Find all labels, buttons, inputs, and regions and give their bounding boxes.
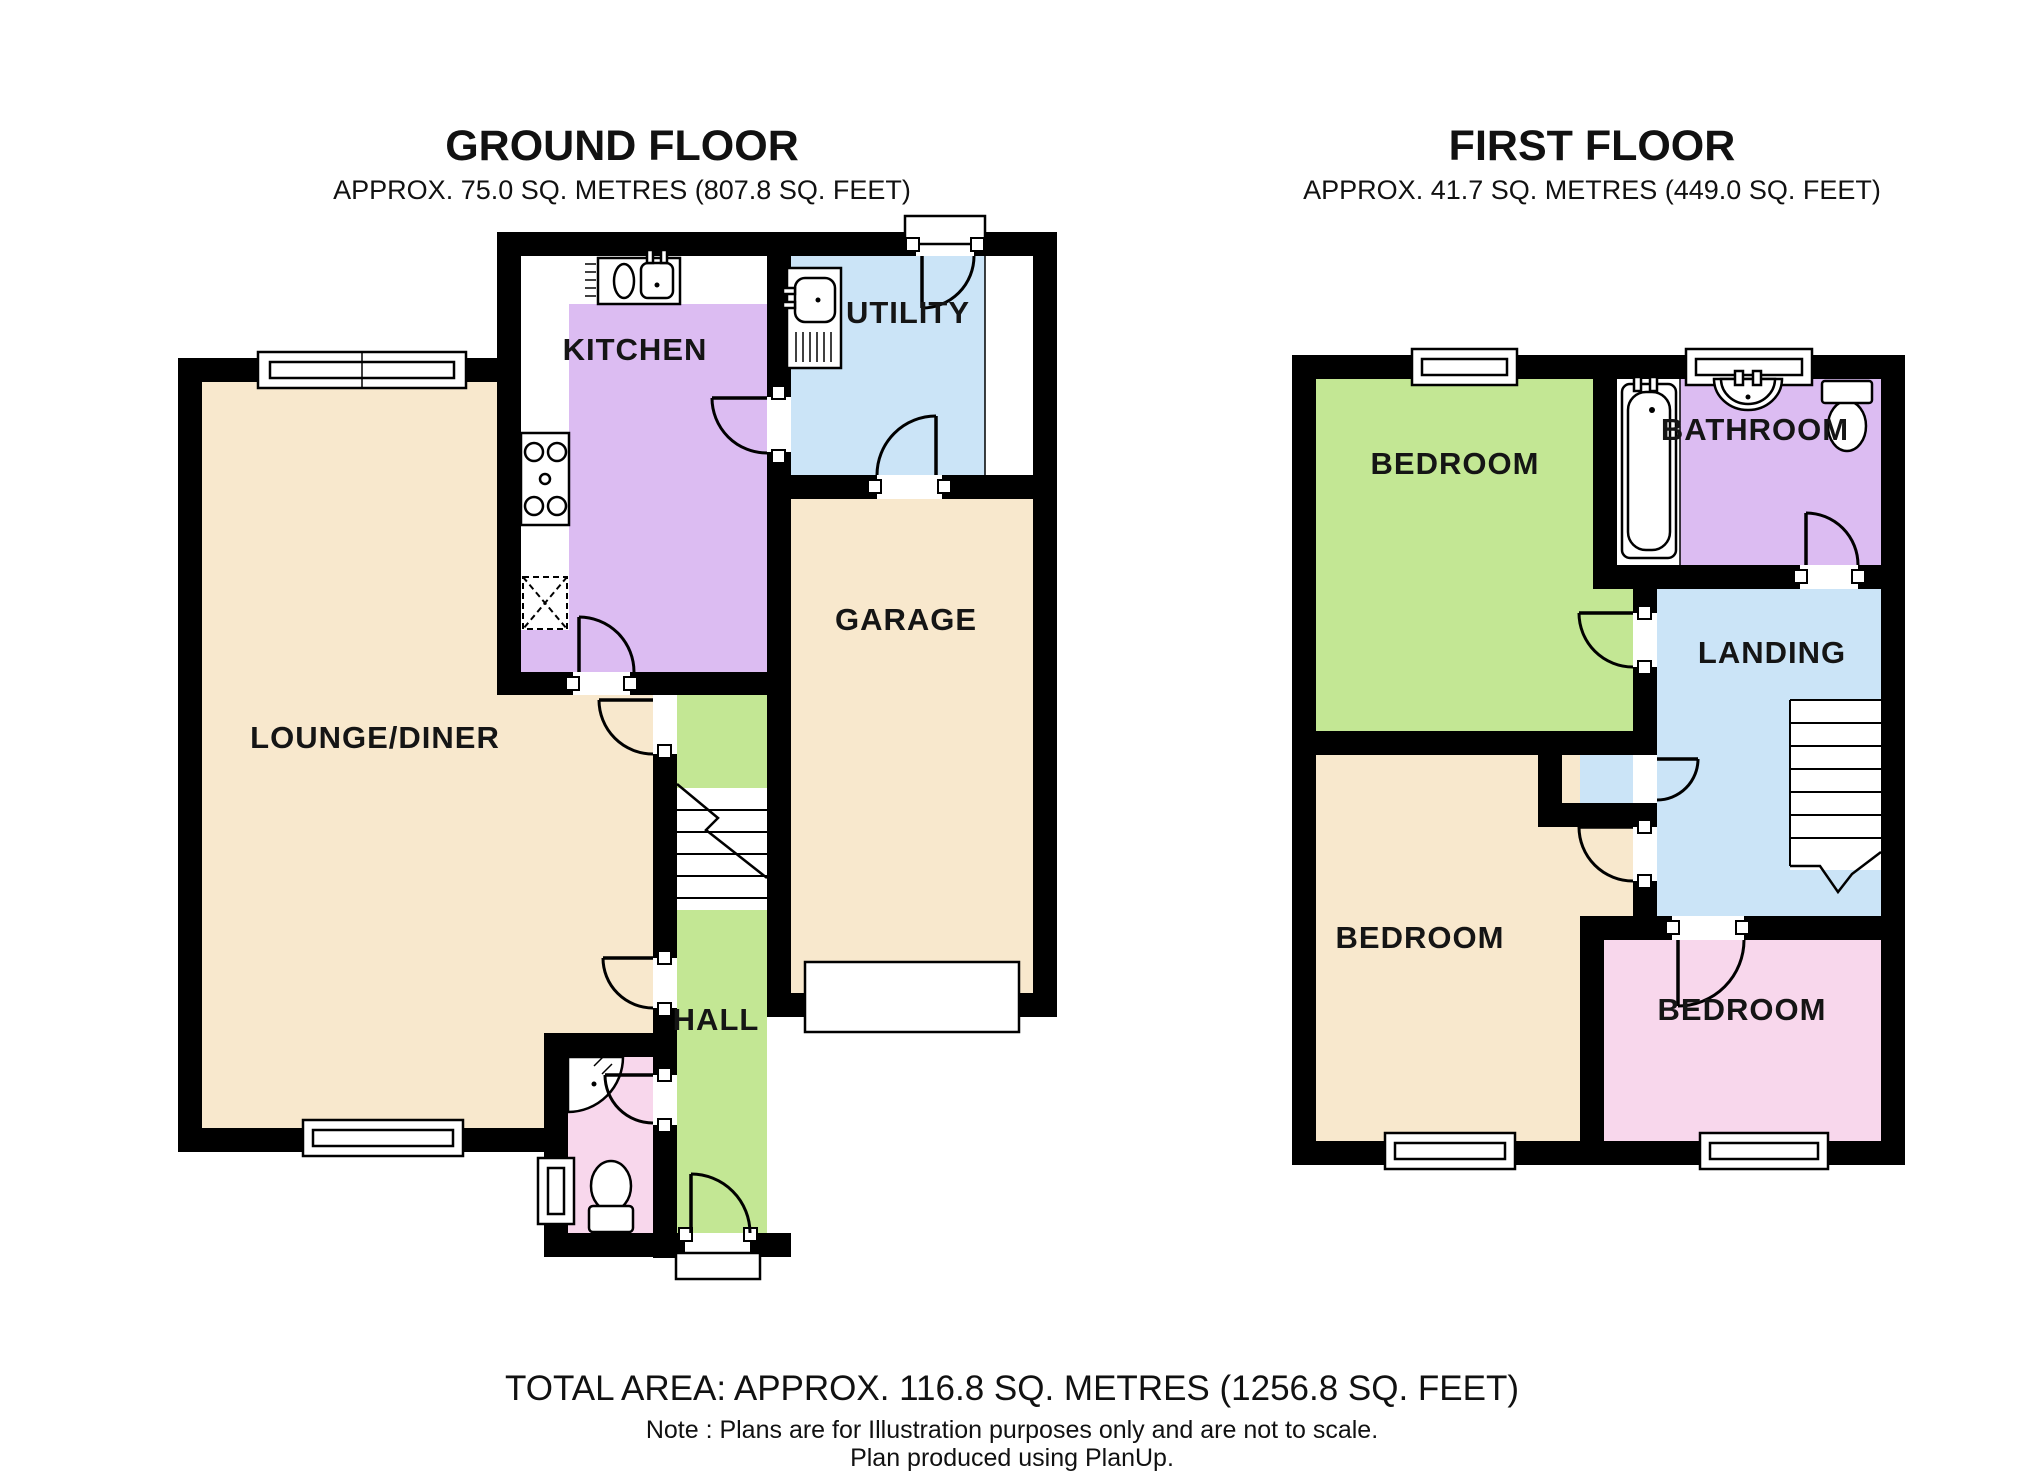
garage-door: [805, 962, 1019, 1032]
wc-window-glass: [548, 1168, 564, 1214]
produced-text: Plan produced using PlanUp.: [850, 1444, 1174, 1472]
label-bedroom-top: BEDROOM: [1371, 446, 1540, 481]
lounge-bottom-window-glass: [313, 1130, 453, 1146]
note-text: Note : Plans are for Illustration purpos…: [646, 1416, 1378, 1444]
room-hall-upper: [677, 695, 767, 788]
ground-stairs: [677, 784, 767, 910]
room-lounge-diner-ext2: [497, 1033, 544, 1128]
label-utility: UTILITY: [846, 295, 970, 330]
bath: [1622, 377, 1676, 558]
label-hall: HALL: [673, 1002, 760, 1037]
room-lounge-diner-ext: [497, 695, 653, 1033]
first-floor-title: FIRST FLOOR: [1449, 122, 1736, 170]
label-bathroom: BATHROOM: [1661, 412, 1849, 447]
bedroom-top-window-glass: [1422, 359, 1507, 375]
room-garage: [791, 499, 1033, 993]
kitchen-sink: [585, 250, 680, 304]
first-stairs: [1790, 700, 1881, 892]
room-bedroom-top-ext: [1593, 589, 1633, 731]
ground-floor-title: GROUND FLOOR: [445, 122, 799, 170]
bathroom-window-glass: [1696, 359, 1802, 375]
bedroom-right-window-glass: [1710, 1143, 1818, 1159]
room-lounge-diner: [202, 382, 497, 1128]
ground-floor-subtitle: APPROX. 75.0 SQ. METRES (807.8 SQ. FEET): [333, 175, 911, 205]
footer: TOTAL AREA: APPROX. 116.8 SQ. METRES (12…: [505, 1369, 1519, 1472]
floorplan-page: GROUND FLOOR APPROX. 75.0 SQ. METRES (80…: [0, 0, 2025, 1473]
label-landing: LANDING: [1698, 635, 1846, 670]
kitchen-appliance-space: [523, 577, 567, 629]
room-bedroom-top: [1316, 379, 1593, 731]
floor-plan-svg: GROUND FLOOR APPROX. 75.0 SQ. METRES (80…: [0, 0, 2025, 1473]
label-bedroom-left: BEDROOM: [1336, 920, 1505, 955]
room-bedroom-left-ext: [1538, 827, 1633, 916]
ground-floor-plan: KITCHEN UTILITY GARAGE LOUNGE/DINER HALL: [178, 216, 1057, 1279]
label-kitchen: KITCHEN: [563, 332, 708, 367]
room-bedroom-right: [1604, 940, 1881, 1141]
wc-toilet: [589, 1161, 633, 1232]
kitchen-hob: [521, 433, 569, 525]
first-floor-subtitle: APPROX. 41.7 SQ. METRES (449.0 SQ. FEET): [1303, 175, 1881, 205]
total-area-text: TOTAL AREA: APPROX. 116.8 SQ. METRES (12…: [505, 1369, 1519, 1408]
first-floor-plan: BEDROOM BATHROOM LANDING BEDROOM BEDROOM: [1292, 349, 1905, 1169]
front-door-sill: [676, 1253, 760, 1279]
label-lounge-diner: LOUNGE/DINER: [250, 720, 500, 755]
label-bedroom-right: BEDROOM: [1658, 992, 1827, 1027]
utility-sink: [783, 268, 841, 368]
bedroom-left-window-glass: [1395, 1143, 1505, 1159]
stairs-ground-area: [677, 788, 767, 910]
label-garage: GARAGE: [835, 602, 977, 637]
stairs-first-area: [1790, 700, 1881, 870]
